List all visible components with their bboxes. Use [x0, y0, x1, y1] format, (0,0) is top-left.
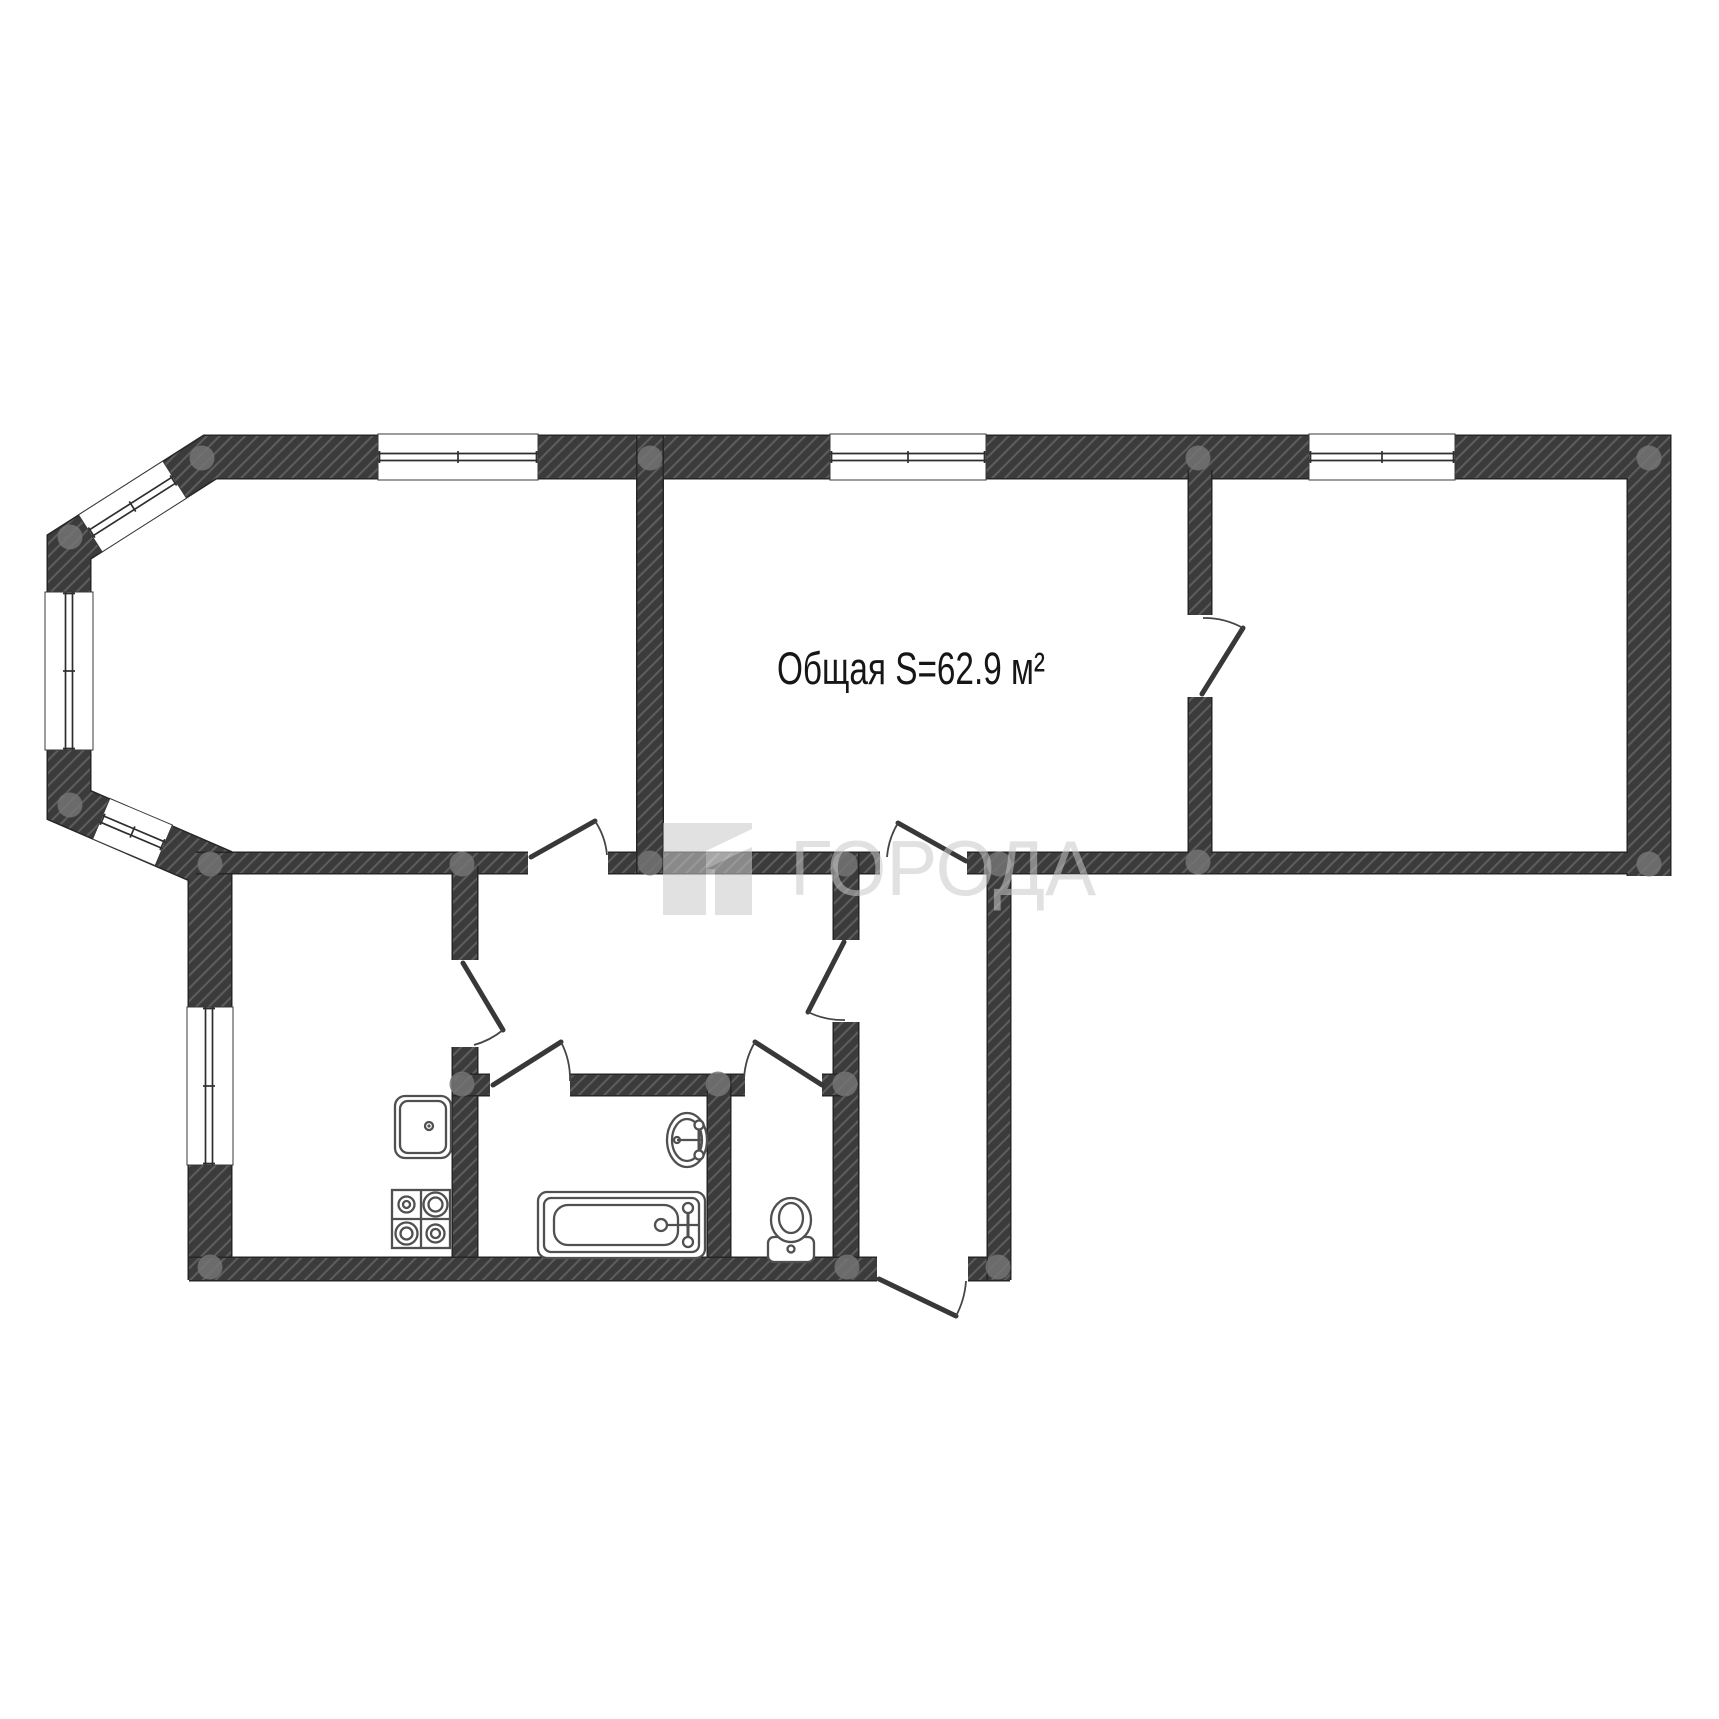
floor-plan-canvas: ГОРОДА Общая S=62.9 м² [0, 0, 1719, 1719]
washbasin-icon [667, 1113, 707, 1167]
bathtub-icon [538, 1192, 705, 1258]
window-symbol-living-top [378, 434, 538, 480]
toilet-icon [768, 1198, 814, 1262]
watermark-text: ГОРОДА [790, 824, 1096, 912]
kitchen-sink-icon [395, 1096, 451, 1158]
door-openings [449, 615, 1215, 1285]
window-symbol-middle-top [830, 434, 986, 480]
window-symbol-bay-left [45, 592, 93, 750]
window-symbol-kitchen-left [187, 1007, 233, 1165]
watermark-logo-icon [663, 823, 752, 915]
floor-plan: ГОРОДА Общая S=62.9 м² [0, 0, 1719, 1719]
window-symbol-right-top [1309, 434, 1455, 480]
stove-icon [392, 1190, 450, 1248]
total-area-label: Общая S=62.9 м² [777, 643, 1045, 694]
windows [45, 434, 1455, 1165]
window-symbol-bay-upper-diagonal [79, 461, 187, 552]
watermark: ГОРОДА [663, 823, 1096, 915]
